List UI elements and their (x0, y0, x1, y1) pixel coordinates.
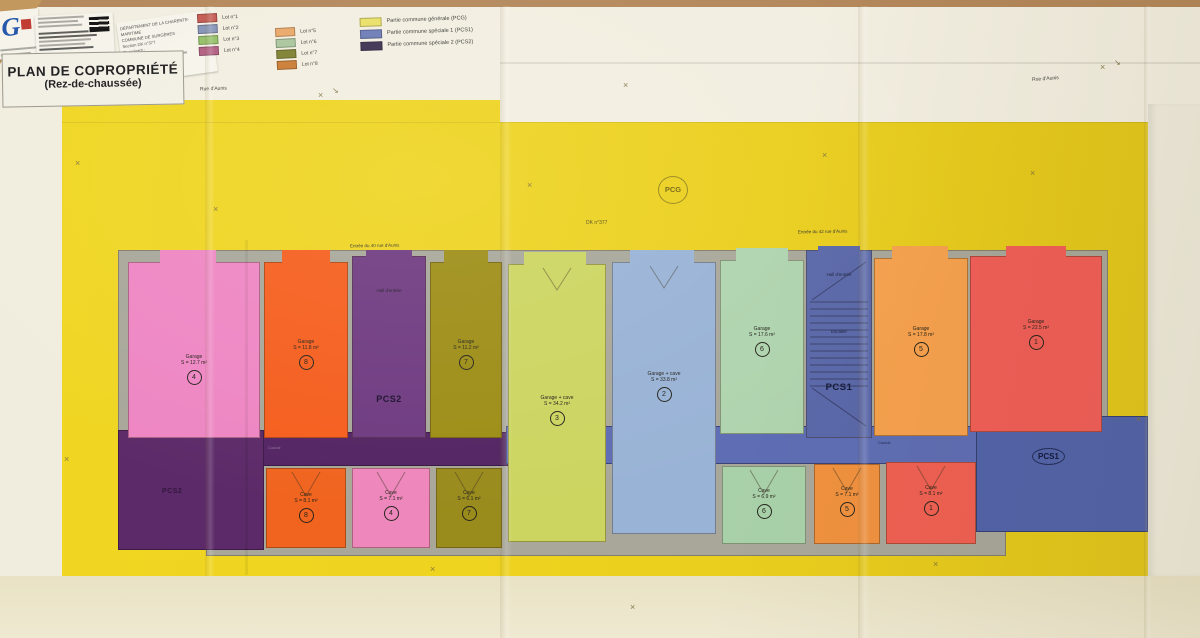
survey-cross: × (64, 454, 69, 464)
survey-cross: × (933, 559, 938, 569)
survey-cross: × (527, 180, 532, 190)
paper-fold-line (62, 122, 1148, 123)
survey-cross: × (318, 90, 323, 100)
paper-crease (205, 6, 215, 576)
survey-cross: × (822, 150, 827, 160)
paper-crease (858, 6, 870, 638)
survey-cross: × (75, 158, 80, 168)
slope-arrow-icon: ↘ (332, 86, 339, 95)
survey-cross: × (430, 564, 435, 574)
paper-crease (245, 240, 248, 575)
photo-of-coownership-plan: G DÉPARTEMENT DE LA CHARENTE-MARITIME CO… (0, 0, 1200, 638)
survey-cross: × (623, 80, 628, 90)
paper-fold-line (500, 62, 1200, 64)
plan-linework (0, 0, 1200, 638)
survey-cross: × (1136, 414, 1141, 424)
survey-cross: × (630, 602, 635, 612)
paper-crease (500, 6, 512, 638)
paper-crease (1144, 6, 1152, 638)
door-swing-icons (292, 266, 945, 496)
survey-cross: × (1030, 168, 1035, 178)
